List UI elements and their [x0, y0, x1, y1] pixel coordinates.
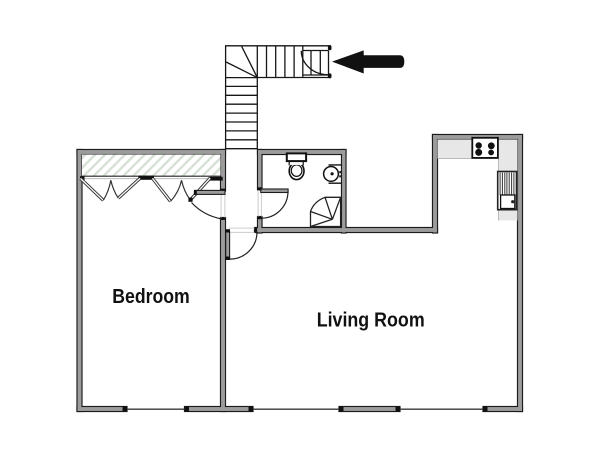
svg-text:Living Room: Living Room [317, 310, 425, 332]
svg-text:Bedroom: Bedroom [112, 286, 190, 308]
